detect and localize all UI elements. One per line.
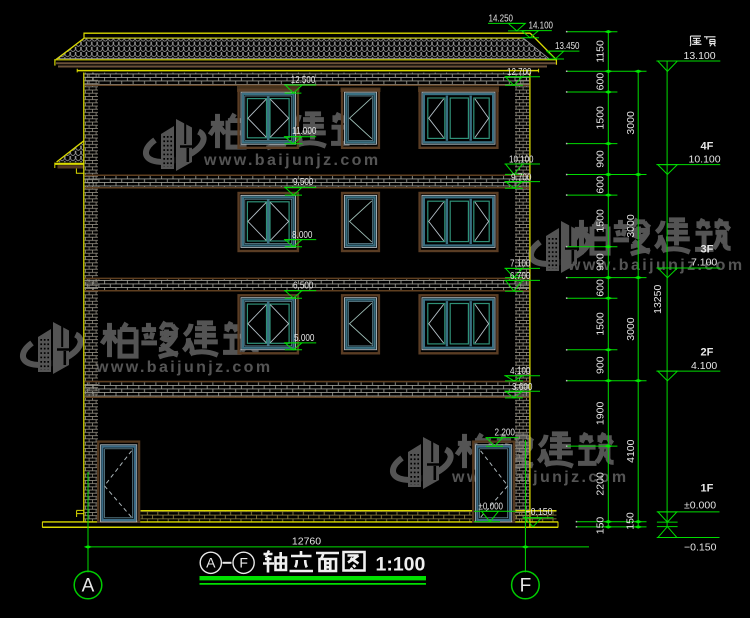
svg-text:3000: 3000 xyxy=(625,111,637,135)
svg-text:600: 600 xyxy=(595,279,607,297)
svg-text:4.100: 4.100 xyxy=(691,360,717,372)
svg-text:2F: 2F xyxy=(701,347,714,359)
svg-text:3000: 3000 xyxy=(625,317,637,341)
svg-text:14.250: 14.250 xyxy=(489,13,514,24)
svg-text:600: 600 xyxy=(595,73,607,91)
svg-text:1500: 1500 xyxy=(595,106,607,130)
svg-text:A: A xyxy=(82,576,95,597)
svg-text:2.200: 2.200 xyxy=(495,428,516,439)
svg-text:1900: 1900 xyxy=(595,402,607,426)
svg-text:13.100: 13.100 xyxy=(684,50,716,62)
svg-text:3000: 3000 xyxy=(625,214,637,238)
svg-text:4F: 4F xyxy=(701,140,714,152)
svg-text:6.500: 6.500 xyxy=(293,280,314,291)
svg-text:150: 150 xyxy=(625,512,637,530)
svg-text:12760: 12760 xyxy=(292,536,321,548)
svg-text:150: 150 xyxy=(594,517,606,535)
svg-text:13.450: 13.450 xyxy=(555,41,580,52)
svg-text:−0.150: −0.150 xyxy=(526,507,553,518)
svg-text:12.500: 12.500 xyxy=(291,75,316,86)
svg-text:3F: 3F xyxy=(701,244,714,256)
svg-text:4100: 4100 xyxy=(625,439,637,463)
svg-text:1F: 1F xyxy=(701,483,714,495)
svg-text:10.100: 10.100 xyxy=(689,153,721,165)
svg-text:14.100: 14.100 xyxy=(529,21,554,32)
svg-text:F: F xyxy=(520,576,532,597)
svg-text:13250: 13250 xyxy=(652,285,664,314)
svg-text:7.100: 7.100 xyxy=(510,259,531,270)
svg-text:900: 900 xyxy=(595,253,607,271)
svg-text:1500: 1500 xyxy=(595,312,607,336)
svg-text:600: 600 xyxy=(595,176,607,194)
svg-text:−0.150: −0.150 xyxy=(684,542,717,554)
svg-text:900: 900 xyxy=(595,356,607,374)
svg-text:www.baijunjz.com: www.baijunjz.com xyxy=(203,152,381,169)
svg-text:9.500: 9.500 xyxy=(293,177,314,188)
svg-text:7.100: 7.100 xyxy=(691,257,717,269)
svg-text:F: F xyxy=(239,555,248,571)
svg-text:www.baijunjz.com: www.baijunjz.com xyxy=(95,359,273,376)
svg-text:11.000: 11.000 xyxy=(292,126,317,137)
svg-text:900: 900 xyxy=(595,150,607,168)
svg-text:A: A xyxy=(206,555,216,571)
svg-text:1150: 1150 xyxy=(595,40,607,63)
svg-text:1500: 1500 xyxy=(595,209,607,233)
svg-text:2200: 2200 xyxy=(595,472,607,496)
svg-text:1:100: 1:100 xyxy=(376,554,426,576)
svg-text:±0.000: ±0.000 xyxy=(684,499,716,511)
